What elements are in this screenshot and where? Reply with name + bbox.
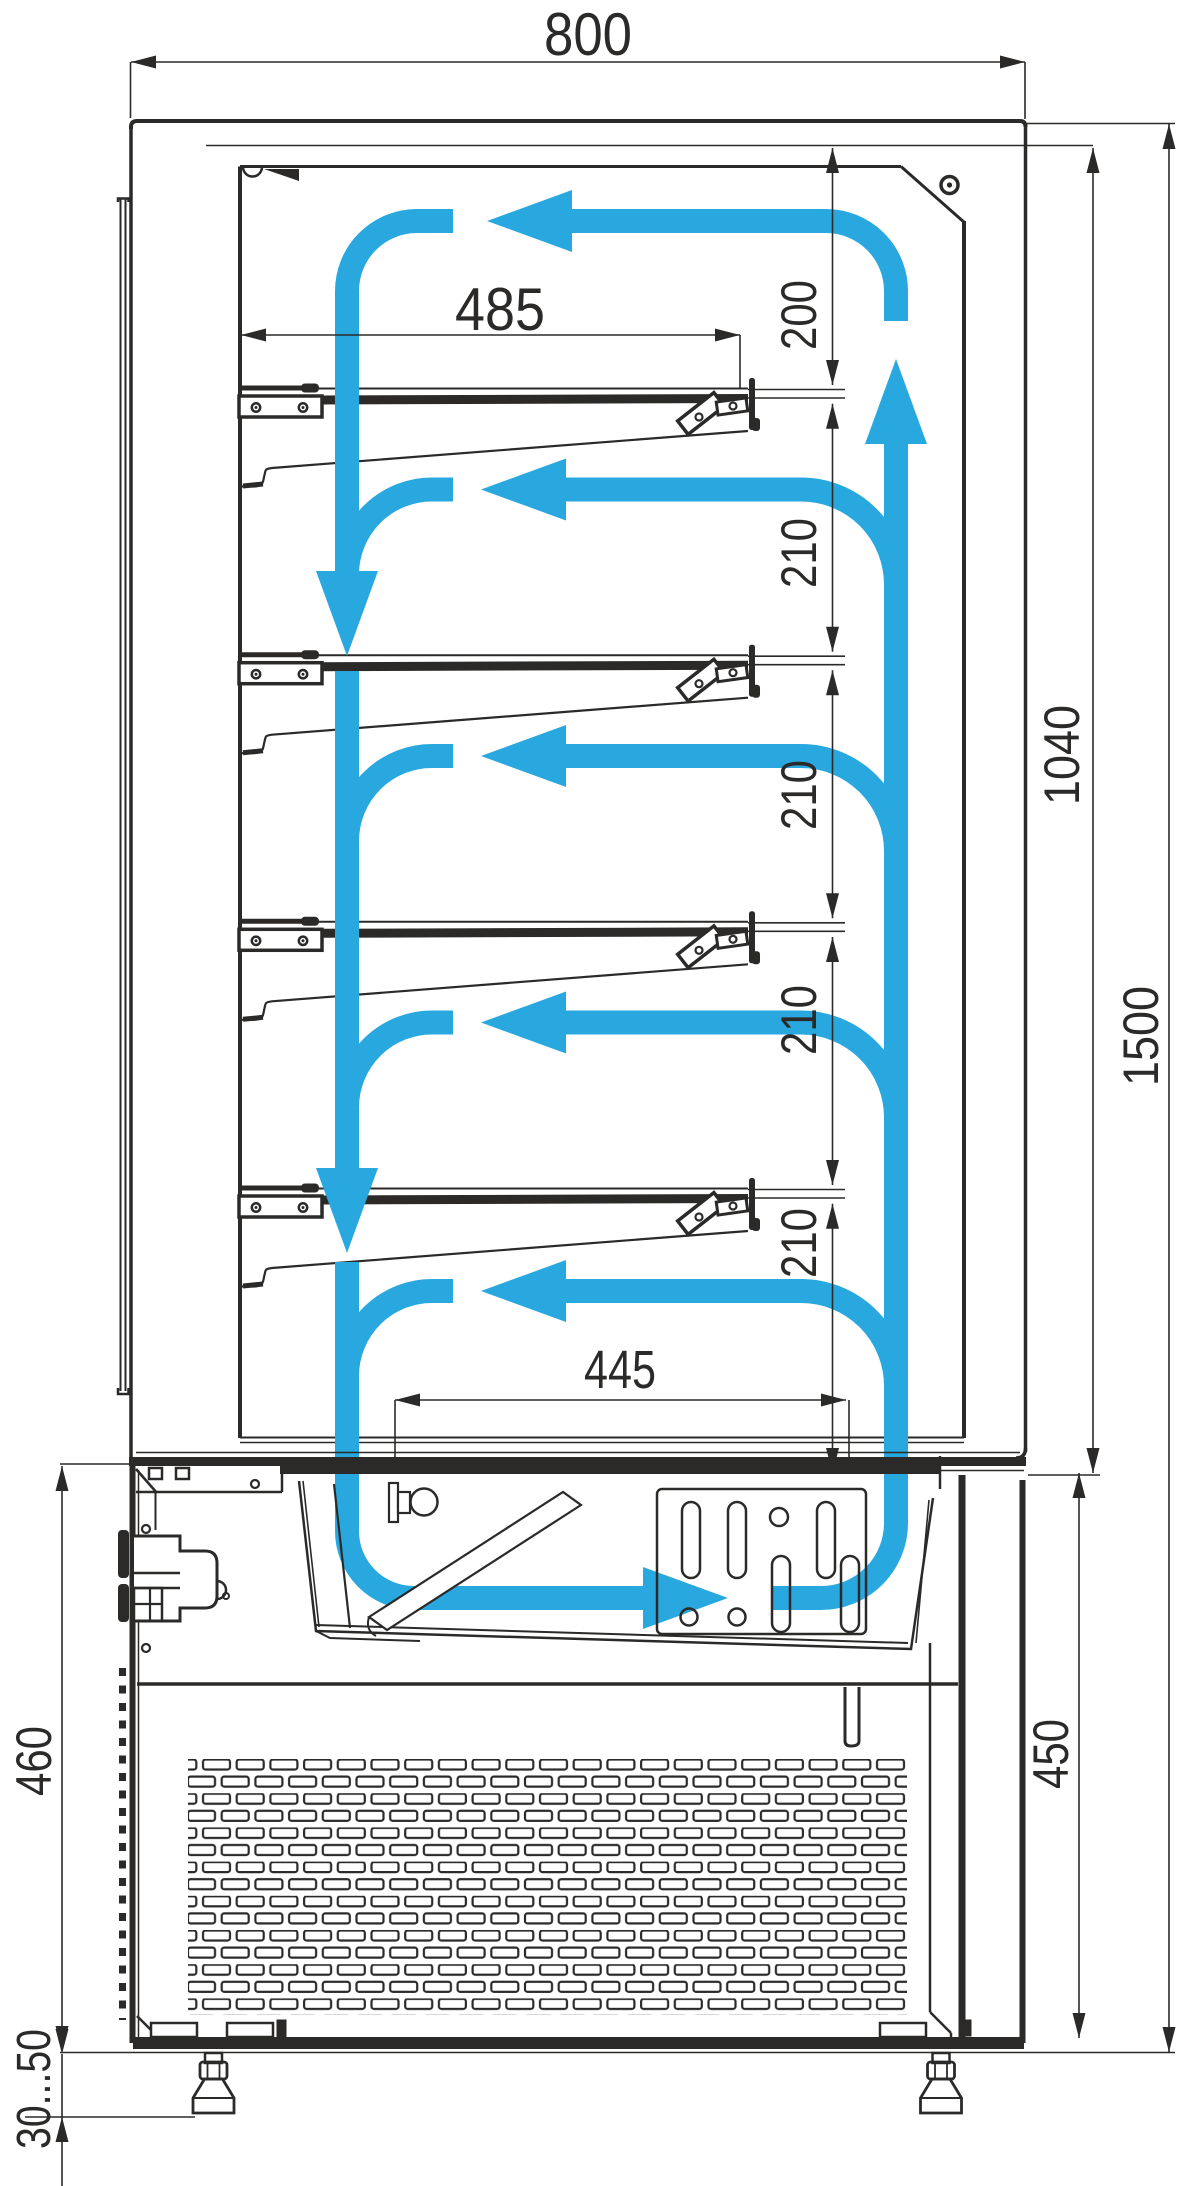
svg-text:445: 445 [584,1340,656,1400]
svg-text:460: 460 [6,1726,62,1796]
svg-text:30...50: 30...50 [8,2029,61,2149]
svg-text:210: 210 [771,985,827,1055]
svg-text:210: 210 [771,1208,827,1278]
svg-text:485: 485 [455,276,545,343]
svg-text:210: 210 [771,518,827,588]
svg-text:210: 210 [771,760,827,830]
svg-text:450: 450 [1023,1719,1079,1789]
svg-text:200: 200 [771,280,827,350]
svg-text:1040: 1040 [1034,705,1090,805]
svg-text:800: 800 [544,1,632,68]
svg-text:1500: 1500 [1113,986,1169,1086]
